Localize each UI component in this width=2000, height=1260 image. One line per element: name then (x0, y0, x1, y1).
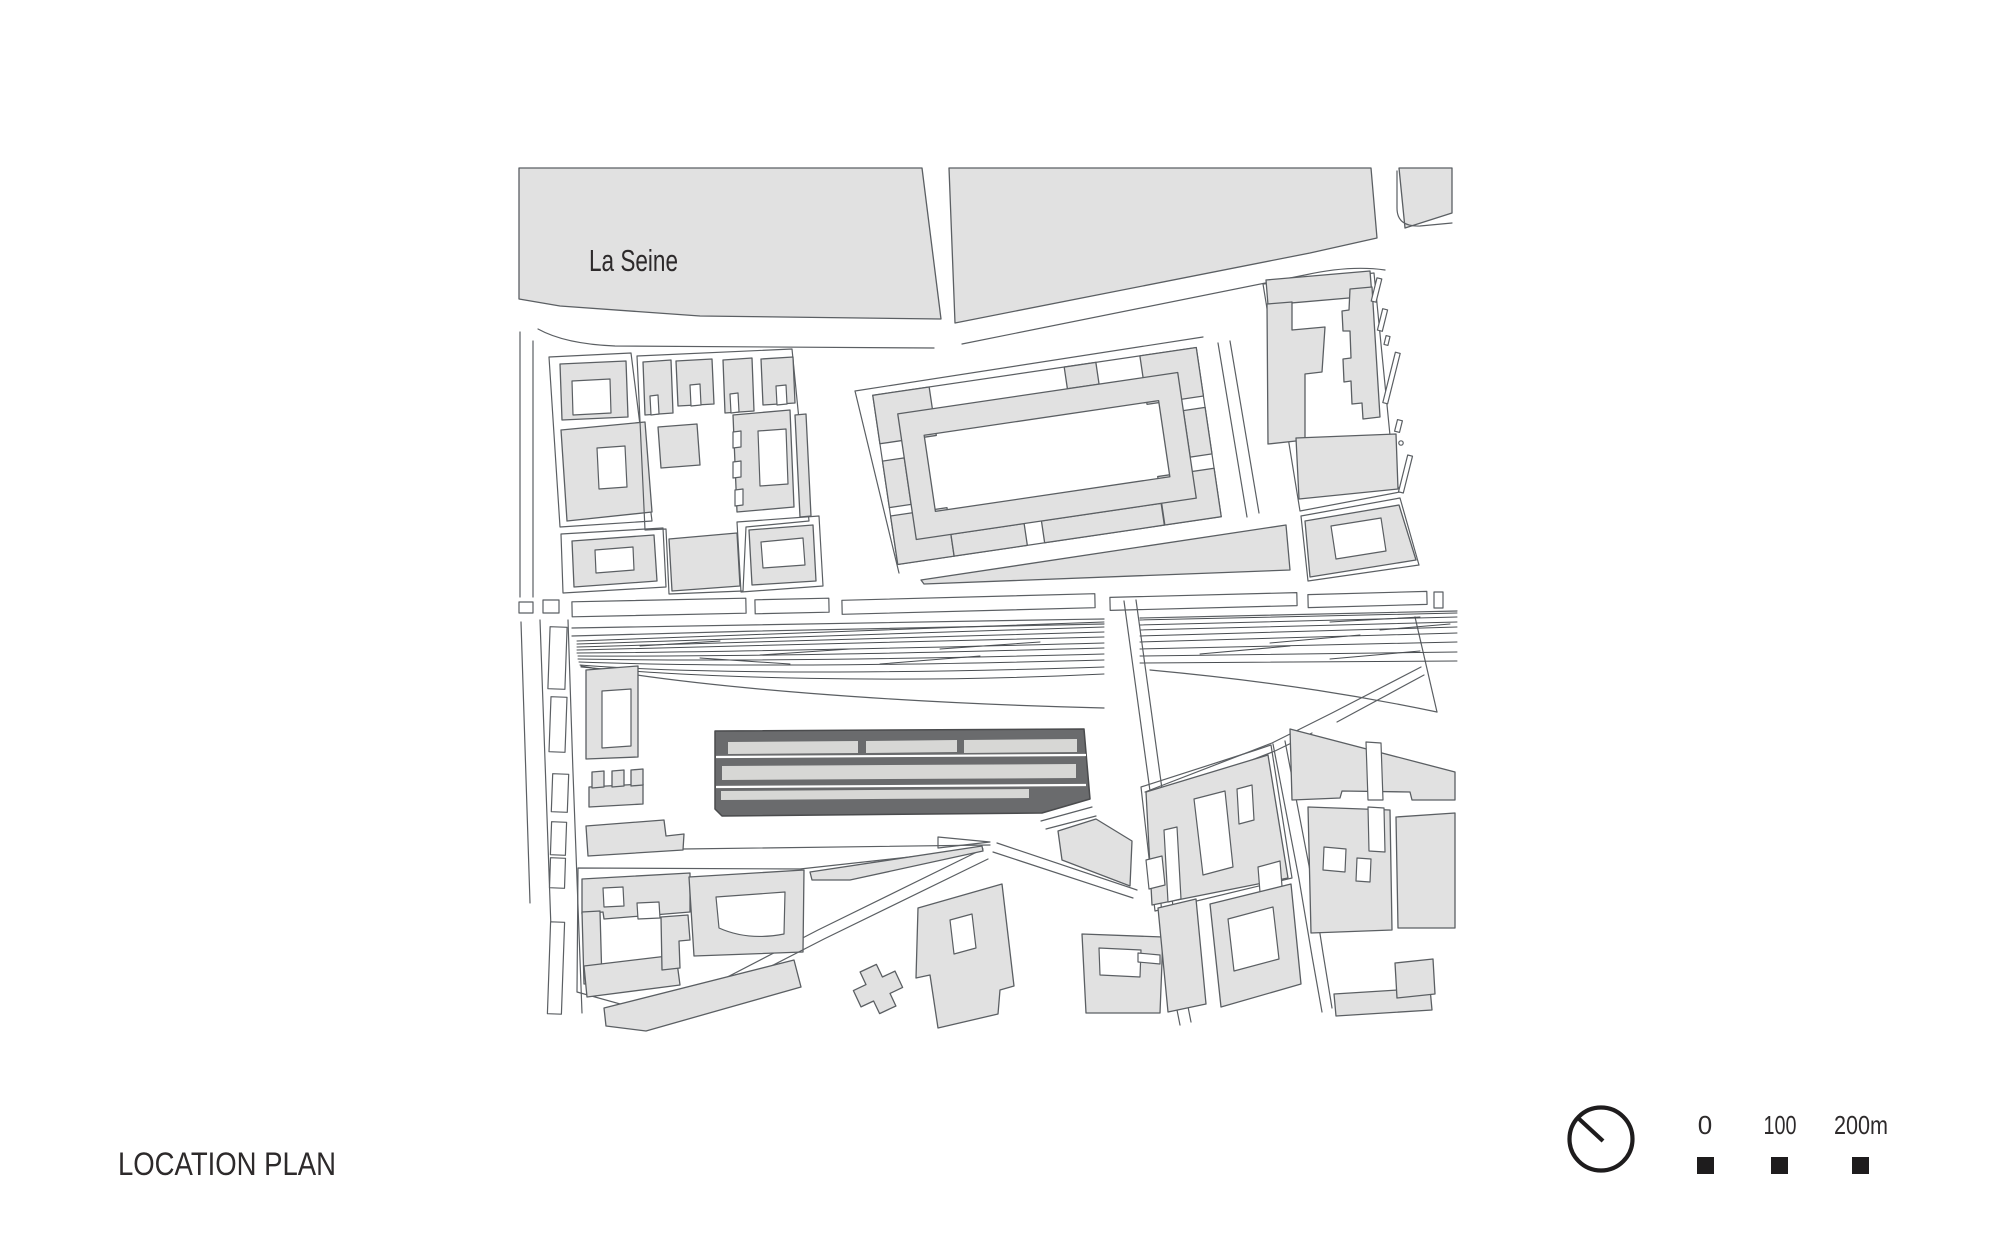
svg-text:100: 100 (1764, 1110, 1797, 1140)
svg-text:200m: 200m (1834, 1110, 1888, 1140)
svg-text:La Seine: La Seine (589, 243, 678, 278)
svg-text:LOCATION PLAN: LOCATION PLAN (118, 1146, 336, 1182)
svg-text:0: 0 (1698, 1110, 1712, 1140)
